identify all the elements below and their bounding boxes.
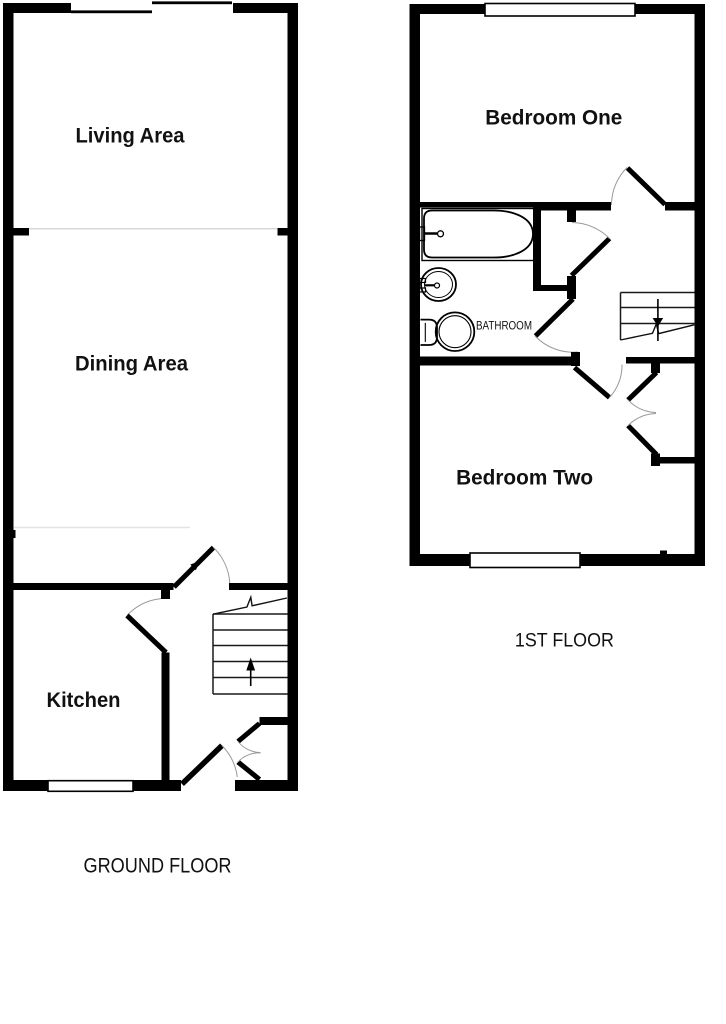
svg-text:Living Area: Living Area — [76, 124, 185, 147]
svg-text:Dining Area: Dining Area — [75, 353, 188, 376]
svg-text:Kitchen: Kitchen — [47, 689, 121, 712]
svg-text:BATHROOM: BATHROOM — [476, 321, 532, 333]
svg-text:1ST FLOOR: 1ST FLOOR — [515, 631, 614, 652]
svg-text:Bedroom One: Bedroom One — [485, 107, 622, 130]
svg-text:Bedroom Two: Bedroom Two — [456, 467, 593, 490]
svg-text:GROUND FLOOR: GROUND FLOOR — [84, 853, 232, 877]
